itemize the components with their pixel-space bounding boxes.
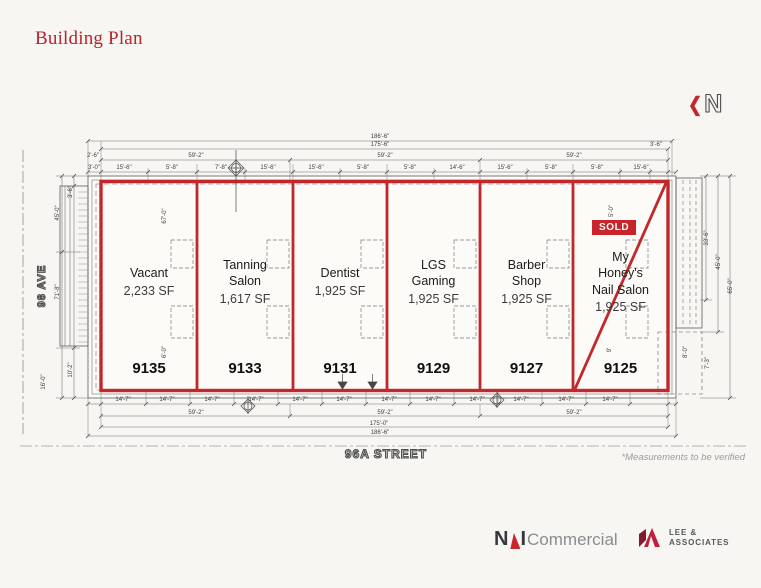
dimension-label: 8'-0" xyxy=(683,346,689,358)
dimension-label: 14'-7" xyxy=(602,397,617,403)
unit-name: LGS xyxy=(421,257,446,273)
nai-wordmark: Commercial xyxy=(527,531,618,549)
dimension-label: 15'-6" xyxy=(116,165,131,171)
unit-number: 9125 xyxy=(573,360,668,378)
dimension-label: 14'-7" xyxy=(425,397,440,403)
unit-area: 1,925 SF xyxy=(501,291,552,307)
lee-associates-logo: LEE & ASSOCIATES xyxy=(636,526,729,550)
dimension-label: 14'-7" xyxy=(469,397,484,403)
unit-area: 1,925 SF xyxy=(595,299,646,315)
nai-a-triangle-icon xyxy=(507,533,520,549)
dimension-label: 33'-6" xyxy=(704,230,710,245)
dimension-label: 186'-6" xyxy=(371,430,390,436)
dimension-label: 15'-6" xyxy=(497,165,512,171)
dimension-label: 65'-0" xyxy=(728,278,734,293)
dimension-label: 3'-0" xyxy=(88,165,100,171)
dimension-label: 16'-0" xyxy=(41,374,47,389)
nai-letter-i: I xyxy=(520,529,526,549)
unit-name: Vacant xyxy=(130,265,168,281)
unit-name: Tanning xyxy=(223,257,267,273)
unit-area: 2,233 SF xyxy=(124,283,175,299)
dimension-label: 5'-8" xyxy=(404,165,416,171)
dimension-label: 59'-2" xyxy=(566,410,581,416)
unit-number: 9133 xyxy=(197,360,293,378)
unit-name: Barber xyxy=(508,257,546,273)
dimension-label: 71'-8" xyxy=(55,284,61,299)
dimension-label: 7'-8" xyxy=(215,165,227,171)
dimension-label: 15'-6" xyxy=(633,165,648,171)
lee-wordmark: LEE & ASSOCIATES xyxy=(669,528,729,548)
street-label-96a-street: 96A STREET xyxy=(316,447,456,461)
dimension-label: 14'-7" xyxy=(204,397,219,403)
street-label-98-ave: 98 AVE xyxy=(36,256,52,316)
unit-name: Dentist xyxy=(321,265,360,281)
dimension-label: 10'-2" xyxy=(68,362,74,377)
unit-name: Shop xyxy=(512,273,541,289)
unit-name: Nail Salon xyxy=(592,282,649,298)
dimension-label: 59'-2" xyxy=(566,153,581,159)
dimension-label: 15'-6" xyxy=(260,165,275,171)
lee-la-monogram-icon xyxy=(636,526,664,550)
unit-number: 9135 xyxy=(101,360,197,378)
dimension-label: 45'-0" xyxy=(55,205,61,220)
nai-commercial-logo: NICommercial xyxy=(494,529,618,549)
unit-name: My xyxy=(612,249,629,265)
unit-9133: TanningSalon1,617 SF xyxy=(197,243,293,321)
unit-9131: Dentist1,925 SF xyxy=(293,243,387,321)
dimension-label: 59'-2" xyxy=(377,153,392,159)
lee-line2: ASSOCIATES xyxy=(669,538,729,548)
dimension-label: 5'-0" xyxy=(609,205,615,217)
dimension-label: 67'-0" xyxy=(162,208,168,223)
dimension-label: 14'-7" xyxy=(381,397,396,403)
unit-name: Salon xyxy=(229,273,261,289)
dimension-label: 14'-7" xyxy=(336,397,351,403)
nai-letter-n: N xyxy=(494,529,508,549)
unit-area: 1,925 SF xyxy=(315,283,366,299)
unit-number: 9129 xyxy=(387,360,480,378)
dimension-label: 3'-6" xyxy=(68,186,74,198)
dimension-label: 175'-6" xyxy=(371,142,390,148)
dimension-label: 186'-6" xyxy=(371,134,390,140)
dimension-label: 15'-6" xyxy=(308,165,323,171)
dimension-label: 14'-7" xyxy=(115,397,130,403)
dimension-label: 14'-7" xyxy=(159,397,174,403)
dimension-label: 175'-0" xyxy=(370,421,389,427)
unit-name: Honey's xyxy=(598,265,643,281)
lee-line1: LEE & xyxy=(669,528,729,538)
dimension-label: 59'-2" xyxy=(188,410,203,416)
measurements-note: *Measurements to be verified xyxy=(621,452,745,463)
dimension-label: 5'-8" xyxy=(357,165,369,171)
dimension-label: 5'-8" xyxy=(166,165,178,171)
unit-number: 9127 xyxy=(480,360,573,378)
unit-area: 1,617 SF xyxy=(220,291,271,307)
dimension-label: 3'-6" xyxy=(650,142,662,148)
dimension-label: 5'-8" xyxy=(591,165,603,171)
unit-number: 9131 xyxy=(293,360,387,378)
dimension-label: 7'-3" xyxy=(705,357,711,369)
unit-9125: MyHoney'sNail Salon1,925 SF xyxy=(573,243,668,321)
dimension-label: 14'-6" xyxy=(449,165,464,171)
unit-9127: BarberShop1,925 SF xyxy=(480,243,573,321)
dimension-label: 9' xyxy=(607,348,613,352)
dimension-label: 45'-0" xyxy=(716,254,722,269)
dimension-label: 14'-7" xyxy=(558,397,573,403)
dimension-label: 59'-2" xyxy=(188,153,203,159)
unit-9135: Vacant2,233 SF xyxy=(101,243,197,321)
dimension-label: 5'-8" xyxy=(545,165,557,171)
unit-area: 1,925 SF xyxy=(408,291,459,307)
dimension-label: 14'-7" xyxy=(292,397,307,403)
building-plan-page: Building Plan ❮ N xyxy=(0,0,761,588)
dimension-label: 59'-2" xyxy=(377,410,392,416)
unit-name: Gaming xyxy=(412,273,456,289)
dimension-label: 2'-6" xyxy=(87,153,99,159)
unit-9129: LGSGaming1,925 SF xyxy=(387,243,480,321)
dimension-label: 14'-7" xyxy=(513,397,528,403)
dimension-label: 14'-7" xyxy=(248,397,263,403)
sold-badge: SOLD xyxy=(592,220,636,235)
dimension-label: 6'-0" xyxy=(162,346,168,358)
plan-overlay: Vacant2,233 SF9135TanningSalon1,617 SF91… xyxy=(0,0,761,588)
